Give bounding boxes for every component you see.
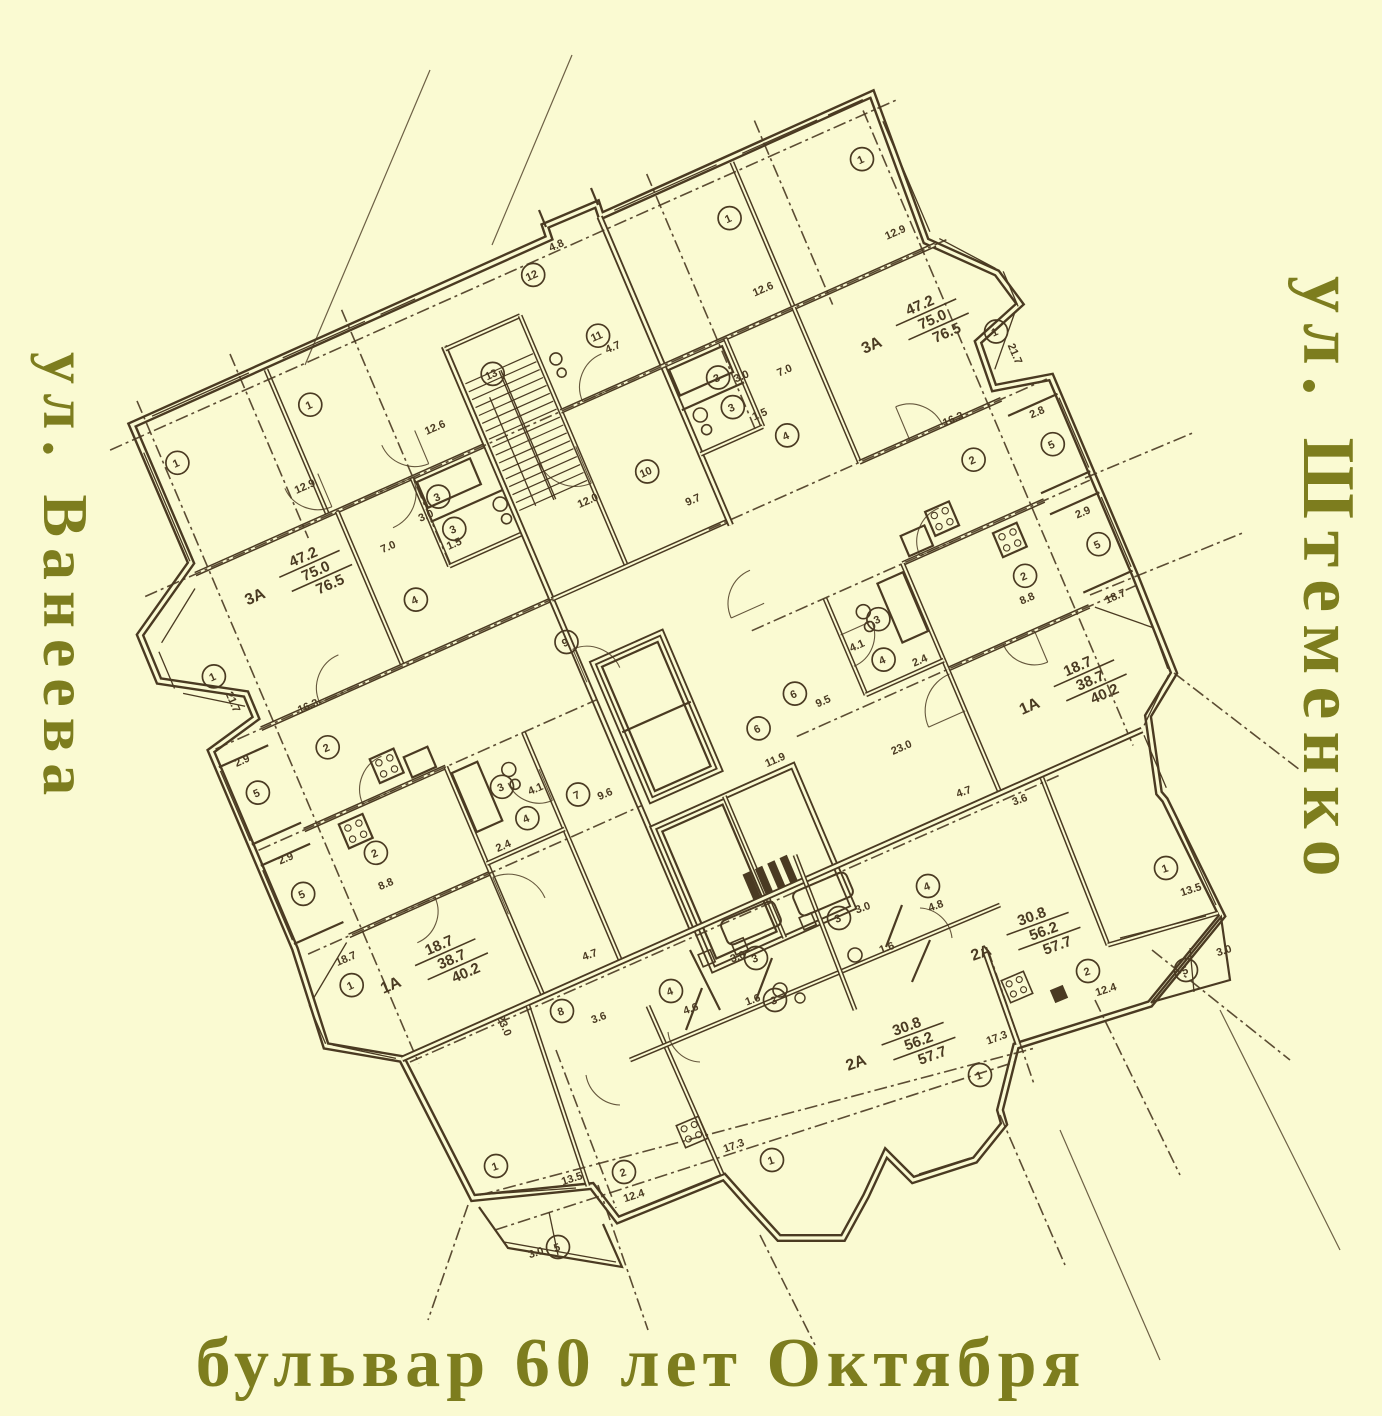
svg-text:ул. Штеменко: ул. Штеменко — [1287, 276, 1369, 889]
svg-text:ул. Ванеева: ул. Ванеева — [30, 352, 101, 806]
svg-text:бульвар 60 лет Октября: бульвар 60 лет Октября — [196, 1325, 1087, 1402]
